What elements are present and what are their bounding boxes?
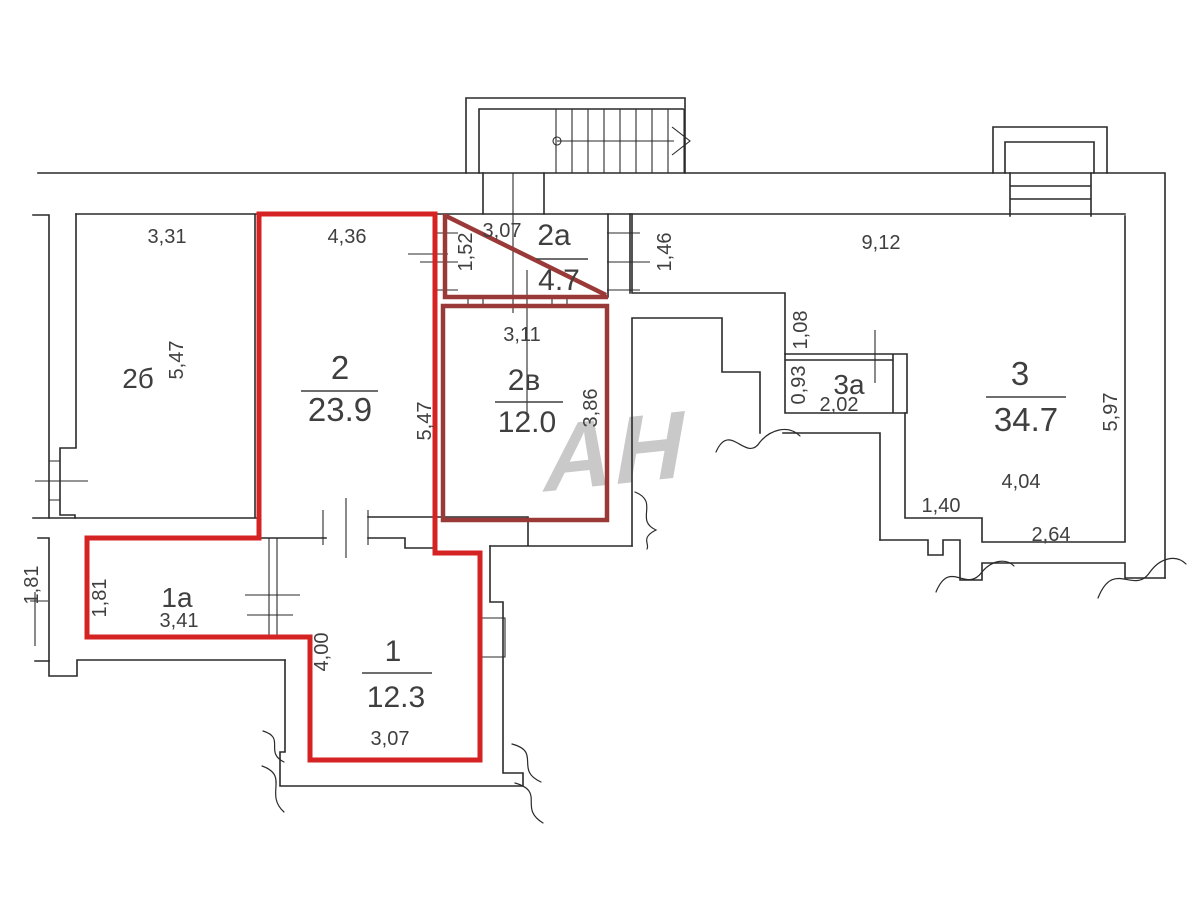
room-1-area: 12.3 bbox=[367, 681, 425, 714]
room-2-number: 2 bbox=[331, 349, 349, 386]
room-2b-label: 2б bbox=[122, 363, 154, 394]
room-1-number: 1 bbox=[385, 635, 402, 668]
dim-label: 9,12 bbox=[862, 232, 901, 254]
dim-label: 1,46 bbox=[654, 233, 676, 272]
dim-label: 5,47 bbox=[166, 341, 188, 380]
room-2-area: 23.9 bbox=[308, 391, 372, 428]
dim-label: 0,93 bbox=[788, 366, 810, 405]
dim-label: 2,64 bbox=[1032, 524, 1071, 546]
dim-label: 3,41 bbox=[160, 610, 199, 632]
dim-label: 4,04 bbox=[1002, 471, 1041, 493]
dim-label: 3,07 bbox=[483, 220, 522, 242]
room-3-number: 3 bbox=[1011, 355, 1029, 392]
room-2v-label: 2в bbox=[508, 364, 541, 397]
dim-label: 3,07 bbox=[371, 728, 410, 750]
dim-label: 3,86 bbox=[580, 389, 602, 428]
floor-plan-canvas: АН bbox=[0, 0, 1200, 900]
dim-label: 1,81 bbox=[21, 566, 43, 605]
dim-label: 1,40 bbox=[922, 495, 961, 517]
dim-label: 1,52 bbox=[455, 233, 477, 272]
room-1a-label: 1а bbox=[161, 582, 193, 613]
agency-watermark: АН bbox=[536, 389, 698, 513]
dim-label: 5,97 bbox=[1100, 393, 1122, 432]
floor-plan-page: АН bbox=[0, 0, 1200, 900]
room-3-area: 34.7 bbox=[994, 401, 1058, 438]
dim-label: 3,31 bbox=[148, 226, 187, 248]
room-2a-label: 2а bbox=[537, 219, 571, 252]
room-2a-area: 4.7 bbox=[538, 264, 580, 297]
room-2v-area: 12.0 bbox=[498, 406, 556, 439]
dim-label: 4,36 bbox=[328, 226, 367, 248]
dim-label: 3,11 bbox=[503, 324, 540, 346]
dim-label: 1,81 bbox=[89, 579, 111, 618]
dim-label: 5,47 bbox=[414, 402, 436, 441]
dim-label: 4,00 bbox=[311, 633, 333, 672]
dim-label: 1,08 bbox=[790, 311, 812, 350]
dim-label: 2,02 bbox=[820, 394, 859, 416]
